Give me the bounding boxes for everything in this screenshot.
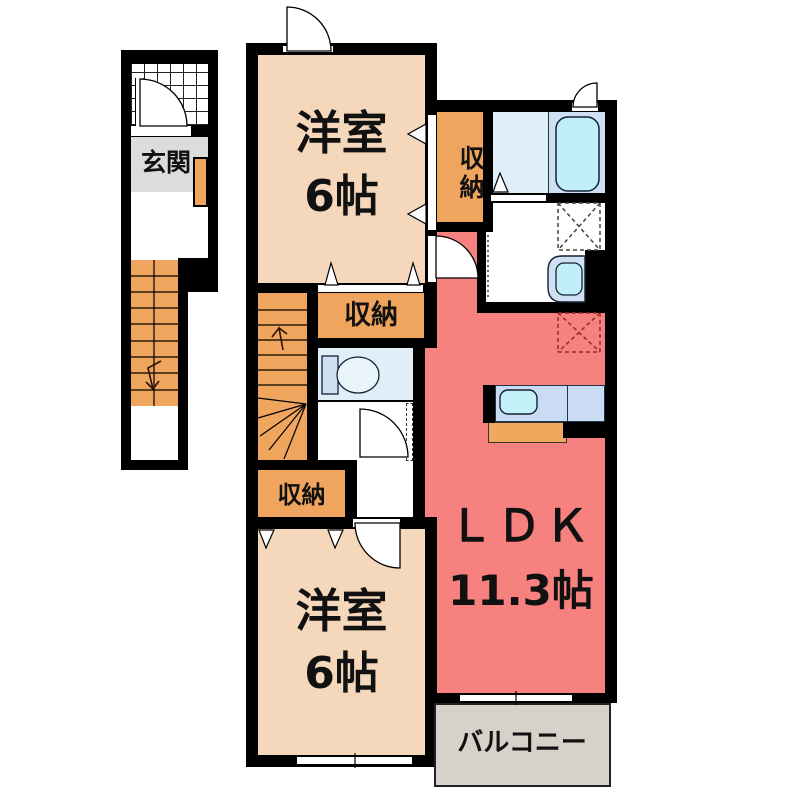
toilet-partition-line (318, 400, 413, 402)
western-top-door-opening (427, 236, 437, 282)
closet-middle-opening (318, 284, 423, 293)
entrance-door-opening (131, 125, 191, 137)
ldk-label: ＬＤＫ (425, 505, 617, 549)
floor-plan: 玄関 洋室 6帖 収納 収納 収納 ＬＤＫ 11.3帖 洋室 6帖 バルコニー (0, 0, 800, 800)
closet-lower-label: 収納 (258, 483, 345, 507)
kitchen-wall-block (563, 422, 605, 438)
ldk-size: 11.3帖 (425, 570, 617, 612)
wall (477, 232, 486, 313)
wall (246, 460, 357, 470)
western-room-bottom-floor (258, 529, 425, 755)
wall (246, 43, 258, 767)
ldk-balcony-window (460, 694, 572, 702)
wall (413, 348, 425, 520)
wall (178, 292, 188, 470)
bath-window-leaf (572, 102, 598, 112)
western-room-top-label: 洋室 (258, 110, 425, 156)
wall (208, 50, 218, 262)
wall (605, 100, 617, 703)
balcony-label: バルコニー (437, 730, 607, 756)
kitchen-counter (495, 385, 605, 422)
wall (307, 283, 318, 460)
wall (477, 302, 617, 313)
western-bottom-window (297, 756, 412, 765)
sink-wall-stub (585, 250, 605, 302)
wall (121, 50, 218, 64)
ldk-floor-corridor (437, 232, 477, 313)
toilet-floor (318, 348, 413, 400)
internal-stair-floor (258, 293, 307, 460)
wall (121, 460, 188, 470)
hallway-floor (318, 402, 413, 461)
wall (178, 258, 218, 292)
wall (121, 50, 131, 470)
western-room-top-floor (258, 55, 425, 283)
wall (246, 517, 437, 529)
wall (345, 460, 357, 517)
closet-right-opening (427, 115, 437, 230)
wall (191, 125, 218, 137)
closet-middle-label: 収納 (318, 302, 424, 329)
kitchen-lower-counter (488, 422, 567, 443)
genkan-label: 玄関 (131, 150, 201, 175)
wall (246, 43, 437, 55)
entrance-door-leaf (135, 78, 144, 126)
western-room-bottom-label: 洋室 (258, 588, 425, 634)
entrance-stair-steps (131, 260, 178, 406)
western-room-bottom-size: 6帖 (258, 652, 425, 696)
kitchen-counter-divider (567, 385, 568, 422)
hallway-floor-lower (357, 461, 413, 517)
hall-door-leaf-open (406, 403, 413, 461)
wall (318, 338, 437, 348)
bathtub-zone (548, 112, 606, 193)
western-bottom-door-opening (353, 518, 400, 528)
wall (424, 292, 437, 338)
bathroom-door-opening (491, 194, 546, 202)
top-window-leaf (283, 45, 333, 53)
closet-right-label: 収納 (437, 126, 483, 221)
kitchen-wall-stub (483, 385, 495, 423)
western-room-top-size: 6帖 (258, 175, 425, 219)
